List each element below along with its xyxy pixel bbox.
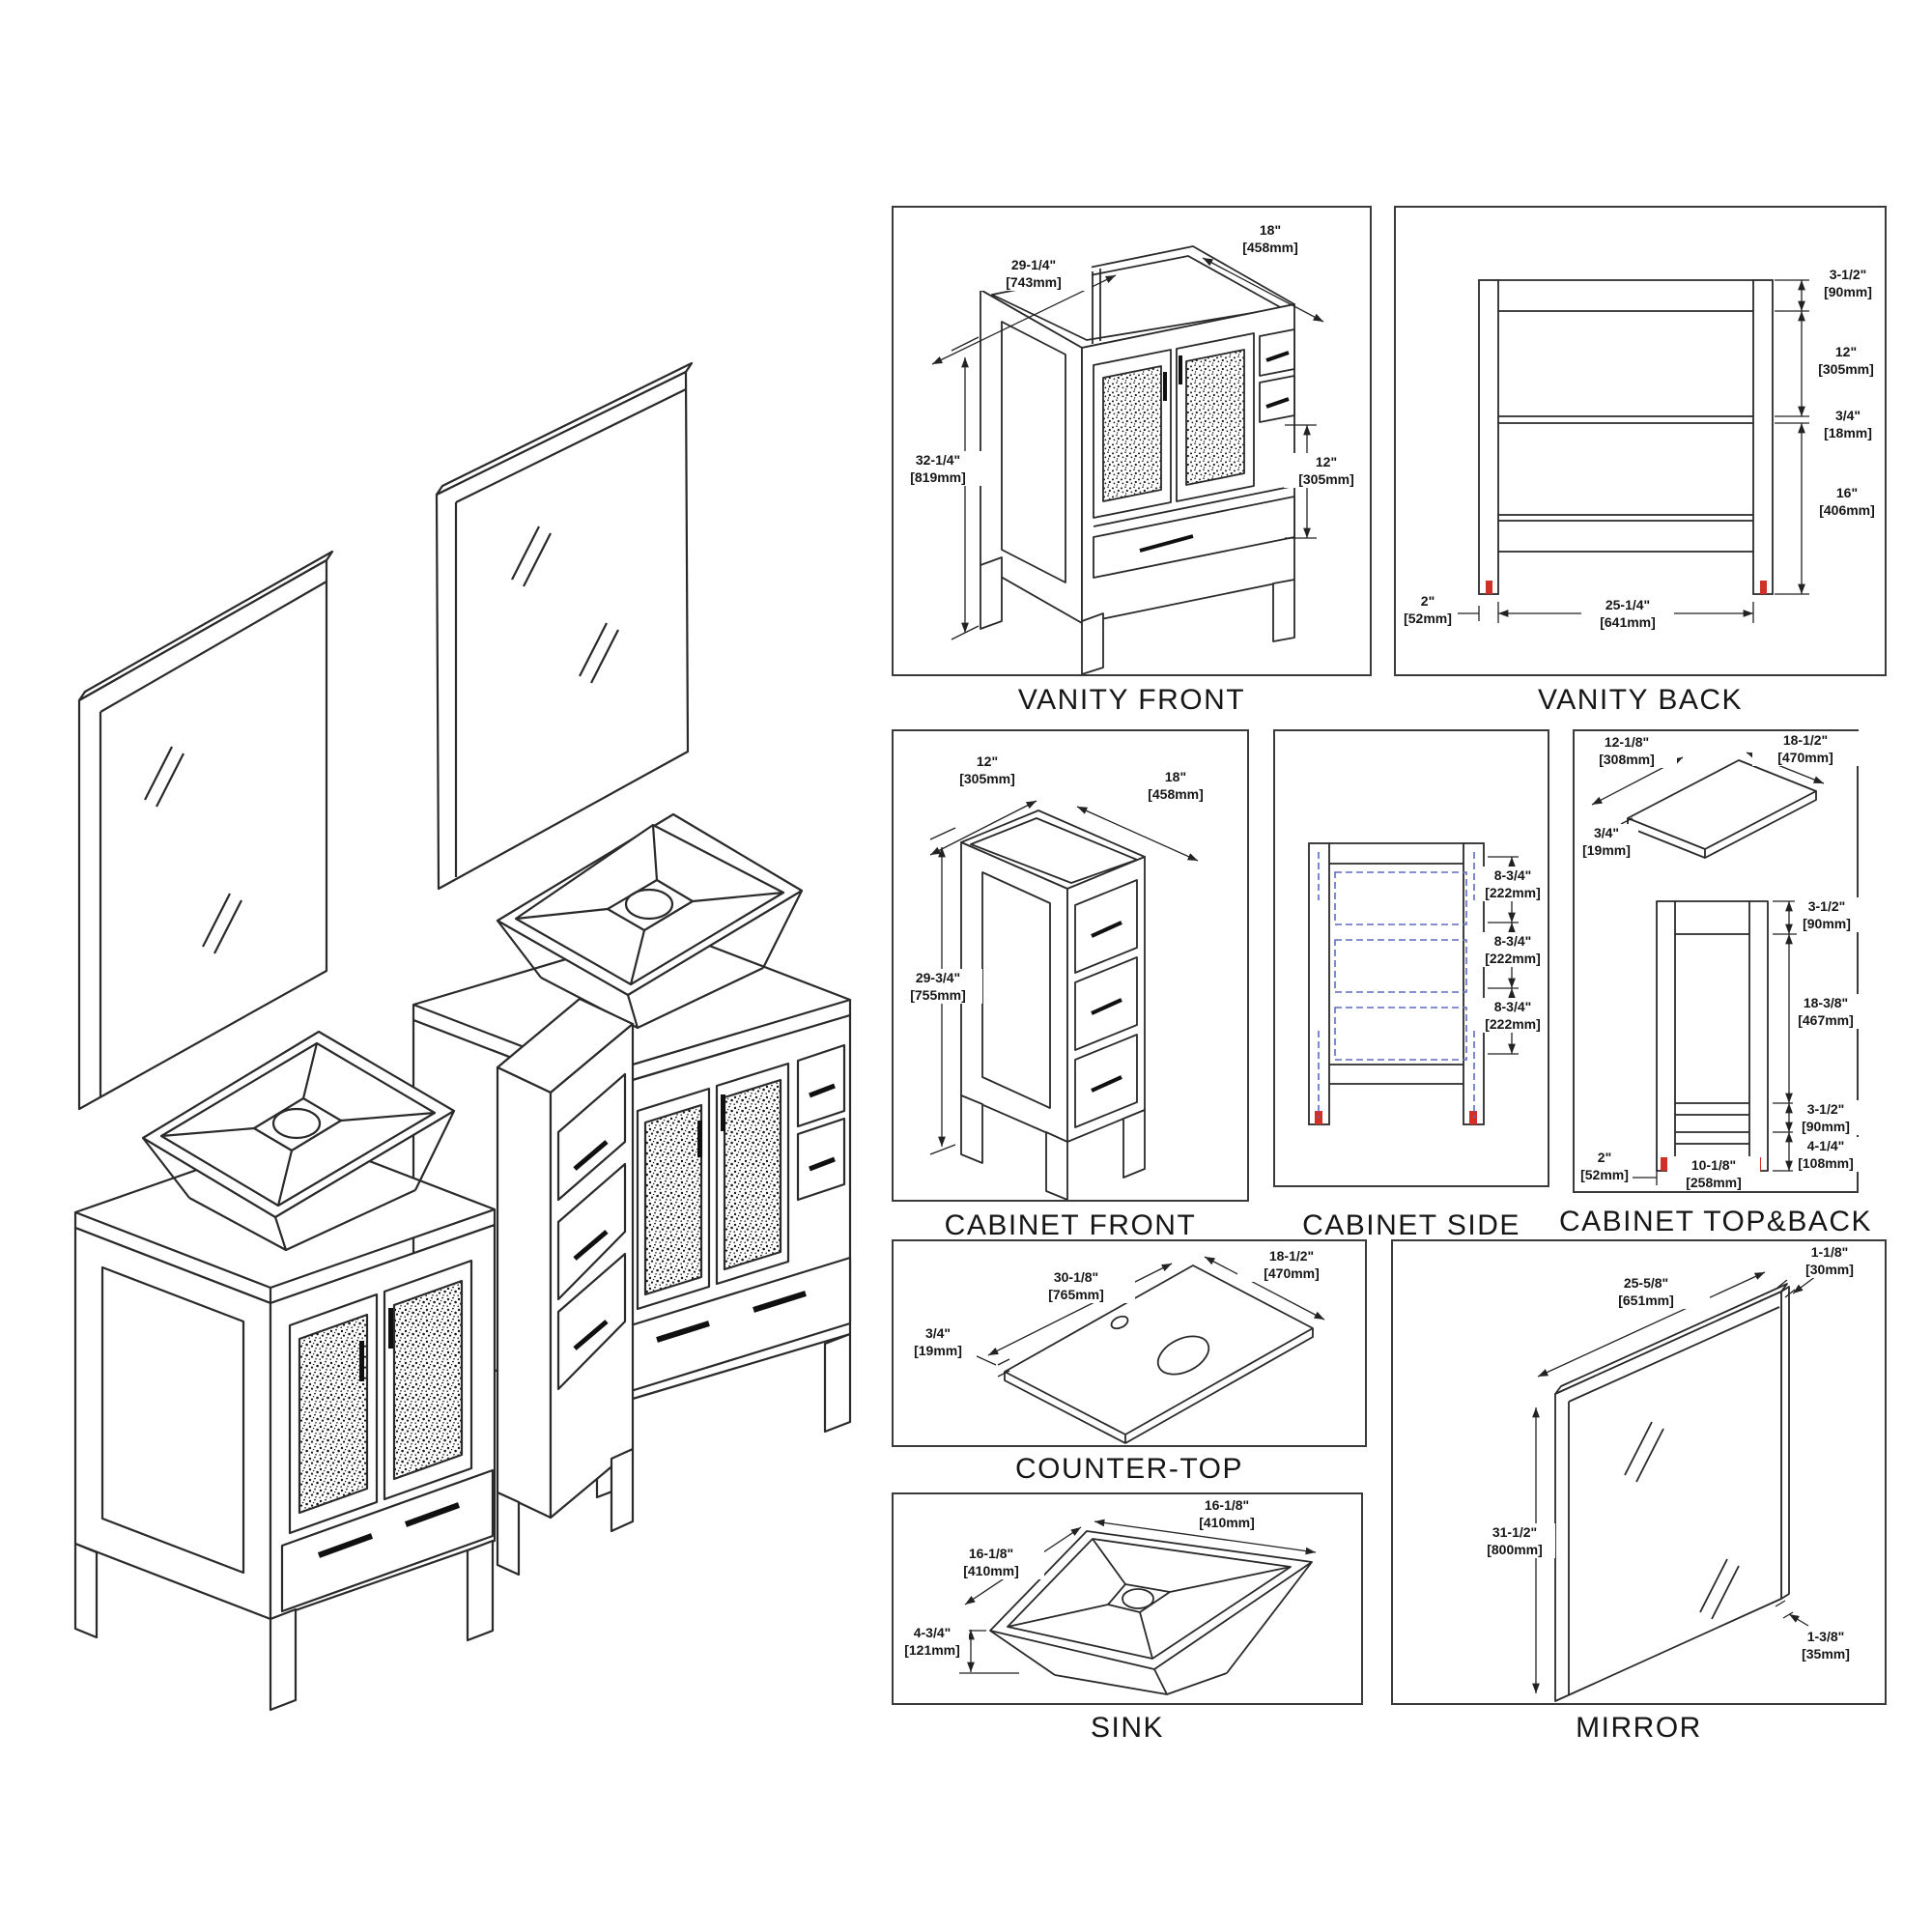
dim-back-upper: 12"[305mm]: [1809, 343, 1883, 378]
door-handle: [721, 1094, 725, 1131]
door-handle: [359, 1341, 364, 1381]
panel-title-counter-top: COUNTER-TOP: [892, 1453, 1367, 1485]
mosaic-door-panel: [299, 1315, 367, 1513]
panel-title-cabinet-front: CABINET FRONT: [892, 1209, 1249, 1241]
door-handle: [1163, 372, 1167, 401]
panel-mirror: 25-5/8"[651mm] 1-1/8"[30mm] 31-1/2"[800m…: [1391, 1239, 1887, 1705]
dim-back-width: 25-1/4"[641mm]: [1581, 596, 1674, 631]
dim-sink-height: 4-3/4"[121mm]: [895, 1624, 969, 1659]
side-panel: [497, 1067, 551, 1518]
dim-side-drawer1: 8-3/4"[222mm]: [1478, 867, 1548, 901]
leg: [1082, 613, 1103, 674]
dim-mirror-thickness: 1-1/8"[30mm]: [1785, 1243, 1874, 1278]
dim-mirror-frame: 1-3/8"[35mm]: [1777, 1628, 1874, 1662]
dim-counter-depth: 18-1/2"[470mm]: [1237, 1247, 1346, 1282]
leg: [961, 1095, 982, 1163]
left-mirror: [79, 552, 332, 1109]
leg: [1479, 280, 1498, 594]
door-handle: [1179, 355, 1182, 384]
dim-back-bottom: 4-1/4"[108mm]: [1793, 1137, 1859, 1172]
panel-sink: 16-1/8"[410mm] 16-1/8"[410mm] 4-3/4"[121…: [892, 1492, 1363, 1705]
dim-back-width: 10-1/8"[258mm]: [1667, 1156, 1760, 1191]
panel-cabinet-front: 12"[305mm] 18"[458mm] 29-3/4"[755mm]: [892, 729, 1249, 1202]
dim-cabinet-height: 29-3/4"[755mm]: [894, 969, 982, 1004]
mosaic-door-panel: [645, 1105, 701, 1294]
middle-side-cabinet: [497, 999, 633, 1575]
dim-back-top-rail: 3-1/2"[90mm]: [1813, 266, 1883, 300]
leg: [825, 1334, 850, 1432]
mosaic-door-panel: [394, 1281, 462, 1479]
dim-side-drawer3: 8-3/4"[222mm]: [1478, 998, 1548, 1033]
dim-vanity-drawer: 12"[305mm]: [1284, 453, 1369, 488]
panel-cabinet-topback: 12-1/8"[308mm] 18-1/2"[470mm] 3/4"[19mm]…: [1573, 729, 1859, 1193]
panel-counter-top: 30-1/8"[765mm] 18-1/2"[470mm] 3/4"[19mm]: [892, 1239, 1367, 1447]
leg: [1046, 1132, 1067, 1200]
panel-vanity-back: 3-1/2"[90mm] 12"[305mm] 3/4"[18mm] 16"[4…: [1394, 206, 1887, 676]
mosaic-door-panel: [724, 1080, 781, 1269]
dim-mirror-width: 25-5/8"[651mm]: [1582, 1274, 1710, 1309]
dim-mirror-height: 31-1/2"[800mm]: [1474, 1523, 1555, 1558]
panel-title-vanity-back: VANITY BACK: [1394, 684, 1887, 716]
mosaic-door-panel: [1186, 350, 1244, 485]
panel-vanity-front: 29-1/4"[743mm] 18"[458mm] 32-1/4"[819mm]…: [892, 206, 1372, 676]
dim-counter-width: 30-1/8"[765mm]: [1017, 1268, 1135, 1303]
leg: [1657, 901, 1675, 1171]
dim-top-depth: 18-1/2"[470mm]: [1752, 731, 1859, 766]
mosaic-door-panel: [1103, 366, 1161, 501]
leg: [1753, 280, 1773, 594]
leg: [611, 1449, 633, 1531]
panel-title-sink: SINK: [892, 1712, 1363, 1744]
side-drawer: [798, 1119, 844, 1200]
vanity-spec-sheet: 29-1/4"[743mm] 18"[458mm] 32-1/4"[819mm]…: [0, 0, 1932, 1932]
dim-back-leg: 2"[52mm]: [1577, 1149, 1633, 1183]
dim-top-width: 12-1/8"[308mm]: [1577, 733, 1677, 768]
leg: [1123, 1110, 1145, 1178]
dim-sink-width: 16-1/8"[410mm]: [938, 1545, 1044, 1579]
side-drawer: [1260, 329, 1294, 376]
leg: [497, 1492, 519, 1575]
adjustable-foot: [1469, 1111, 1477, 1124]
dim-cabinet-width: 12"[305mm]: [934, 753, 1040, 787]
dim-vanity-width: 29-1/4"[743mm]: [976, 256, 1092, 291]
vanity-front-drawing: [894, 208, 1370, 674]
panel-title-cabinet-side: CABINET SIDE: [1273, 1209, 1549, 1241]
side-recessed-panel: [102, 1267, 243, 1573]
dim-counter-thickness: 3/4"[19mm]: [899, 1324, 977, 1359]
adjustable-foot: [1486, 581, 1492, 594]
door-handle: [388, 1308, 393, 1349]
right-mirror: [437, 363, 692, 889]
dim-side-drawer2: 8-3/4"[222mm]: [1478, 932, 1548, 967]
adjustable-foot: [1760, 581, 1767, 594]
leg: [1749, 901, 1768, 1171]
leg: [468, 1541, 493, 1640]
leg: [980, 557, 1002, 629]
panel-title-cabinet-topback: CABINET TOP&BACK: [1542, 1206, 1889, 1237]
side-drawer: [798, 1045, 844, 1126]
dim-back-mid: 18-3/8"[467mm]: [1793, 994, 1859, 1029]
door-handle: [697, 1121, 702, 1157]
cabinet-top-slab: [1628, 760, 1816, 849]
dim-back-shelf: 3/4"[18mm]: [1813, 407, 1883, 441]
dim-sink-depth: 16-1/8"[410mm]: [1168, 1496, 1286, 1531]
side-drawer: [1260, 376, 1294, 422]
dim-back-low: 3-1/2"[90mm]: [1793, 1100, 1859, 1135]
dim-vanity-height: 32-1/4"[819mm]: [894, 451, 982, 486]
dim-vanity-depth: 18"[458mm]: [1212, 221, 1328, 256]
leg: [270, 1609, 296, 1710]
isometric-vanity-set-illustration: [0, 0, 889, 1835]
leg: [75, 1544, 97, 1637]
dim-back-top: 3-1/2"[90mm]: [1795, 897, 1859, 932]
dim-back-leg: 2"[52mm]: [1398, 592, 1458, 627]
panel-title-vanity-front: VANITY FRONT: [892, 684, 1372, 716]
leg: [1273, 580, 1294, 641]
panel-cabinet-side: 8-3/4"[222mm] 8-3/4"[222mm] 8-3/4"[222mm…: [1273, 729, 1549, 1187]
hidden-drawer-boxes: [1319, 852, 1474, 1118]
dim-back-lower: 16"[406mm]: [1809, 484, 1885, 519]
sink-drawing: [894, 1494, 1361, 1703]
panel-title-mirror: MIRROR: [1391, 1712, 1887, 1744]
dim-cabinet-depth: 18"[458mm]: [1118, 768, 1234, 803]
mirror-side-edge: [1781, 1287, 1789, 1599]
dim-top-thickness: 3/4"[19mm]: [1575, 824, 1638, 859]
